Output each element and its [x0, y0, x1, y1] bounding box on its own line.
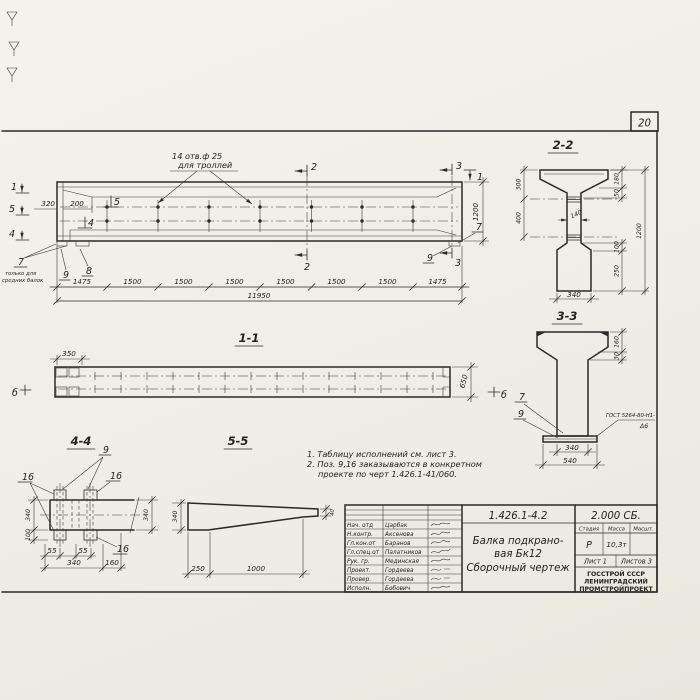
anchor-crosses — [58, 372, 447, 393]
section-3-3-label: 3-3 — [557, 309, 578, 323]
page-number-box: 20 — [631, 112, 658, 131]
weld-mark: Δ6 — [639, 423, 648, 430]
dim-160: 160 — [105, 558, 119, 567]
section-cut-marks: 2 2 3 3 — [295, 161, 462, 273]
plan-view-1-1: 1-1 350 650 б б — [12, 331, 507, 402]
revision-marks — [7, 12, 19, 82]
dim-340-bottom: 340 — [67, 558, 81, 567]
note-line-1: 1. Таблицу исполнений см. лист 3. — [307, 449, 457, 459]
dim-340-left: 340 — [25, 509, 32, 521]
dim-320: 320 — [41, 199, 55, 208]
doc-number: 1.426.1-4.2 — [489, 511, 548, 522]
view-mark-1: 1 — [11, 182, 17, 193]
interior-cut-marks: 5 4 — [78, 196, 120, 229]
plan-1-1-label: 1-1 — [239, 331, 260, 345]
view-5-5-label: 5-5 — [228, 434, 249, 448]
name: Мединская — [385, 559, 419, 565]
dim-180: 180 — [614, 173, 621, 185]
dim-250: 250 — [191, 564, 205, 573]
dim-30: 30 — [614, 352, 621, 360]
mass-value: 10,3т — [606, 540, 627, 549]
section-4-4-label: 4-4 — [70, 434, 92, 448]
doc-code: 2.000 СБ. — [591, 511, 641, 522]
callouts-33: 7 9 — [514, 392, 563, 438]
cut-mark-5: 5 — [114, 197, 120, 208]
dim-400: 400 — [516, 212, 523, 224]
callout-8: 8 — [86, 266, 92, 277]
section-2-2-label: 2-2 — [553, 138, 574, 152]
seg-dim: 1500 — [123, 277, 142, 286]
seg-dim: 1475 — [428, 277, 447, 286]
right-dim-55: 40 — [320, 505, 336, 520]
callout-16-tr: 16 — [110, 471, 122, 482]
callout-16-tl: 16 — [22, 472, 34, 483]
dim-200: 200 — [70, 199, 84, 208]
callout-16-br: 16 — [117, 544, 129, 555]
height-dim: 1200 — [464, 177, 489, 246]
total-dim: 11950 — [248, 291, 271, 300]
bottom-plate — [543, 436, 597, 442]
view-mark-1-right: 1 — [477, 172, 483, 183]
dim-100: 100 — [25, 529, 32, 541]
org-line-1: ГОССТРОЙ СССР — [587, 569, 645, 578]
callout-7-note1: только для — [5, 271, 37, 277]
callout-7: 7 — [519, 392, 525, 403]
header-scale: Масшт. — [633, 527, 653, 533]
mark-b-left: б — [12, 388, 18, 399]
weld-note: ГОСТ 5264-80-Н1- Δ6 — [597, 413, 655, 436]
role: Гл.кон.от — [347, 541, 376, 547]
name: Палатников — [385, 550, 422, 556]
stamp-right-grid: Стадия Масса Масшт. Р 10,3т Лист 1 Листо… — [575, 523, 657, 593]
stage-value: Р — [586, 540, 592, 551]
view-mark-5: 5 — [9, 204, 15, 215]
seg-dim: 1500 — [276, 277, 295, 286]
callout-7: 7 — [18, 257, 24, 268]
dim-40: 40 — [330, 509, 336, 516]
drawing-notes: 1. Таблицу исполнений см. лист 3. 2. Поз… — [307, 449, 482, 479]
title-line-2: вая Бк12 — [494, 549, 542, 560]
dim-650: 650 — [457, 373, 469, 389]
beam-outline — [57, 182, 462, 246]
seg-dim: 1500 — [378, 277, 397, 286]
end-details — [56, 367, 450, 397]
role: Исполн. — [347, 586, 371, 592]
role: Проект. — [347, 568, 371, 574]
dim-55a: 55 — [47, 546, 57, 555]
note-line-2: 2. Поз. 9,16 заказываются в конкретном — [307, 459, 482, 469]
title-line-3: Сборочный чертеж — [466, 562, 570, 574]
bottom-dim: 340 — [549, 290, 599, 303]
right-dims: 180 50 1200 100 250 — [583, 166, 649, 295]
section-mark-2-bottom: 2 — [304, 262, 310, 273]
dim-340-right: 340 — [143, 509, 150, 521]
dim-350-group: 350 — [50, 349, 90, 365]
org-line-3: ПРОМСТРОЙПРОЕКТ — [579, 584, 653, 593]
bottom-dims-33: 340 540 — [535, 443, 605, 469]
section-mark-3-bottom: 3 — [455, 258, 461, 269]
scanned-drawing-sheet: 20 — [0, 0, 700, 700]
holes-note-line2: для троллей — [177, 160, 233, 170]
bottom-dims-44: 55 55 340 160 — [40, 533, 126, 571]
bottom-dims-55: 250 1000 — [182, 519, 310, 578]
dim-340: 340 — [172, 511, 179, 523]
callout-7-note2: средних балок — [2, 278, 44, 284]
role: Рук. гр. — [347, 559, 370, 565]
drawing-canvas: 20 — [0, 0, 700, 700]
dim-300: 300 — [516, 179, 523, 191]
left-dims-44: 340 100 — [25, 496, 48, 544]
personnel-grid: Нач. отд Царбак Н.контр. Аксенова Гл.кон… — [345, 505, 462, 592]
callout-9-right: 9 — [427, 253, 433, 264]
left-dim-55: 340 — [172, 499, 186, 534]
note-line-3: проекте по черт 1.426.1-41/060. — [318, 469, 457, 479]
dimension-chain: 1475 1500 1500 1500 1500 1500 1500 1475 … — [50, 246, 469, 304]
role: Н.контр. — [347, 532, 373, 538]
title-block: Нач. отд Царбак Н.контр. Аксенова Гл.кон… — [345, 505, 657, 593]
seg-dim: 1475 — [73, 277, 92, 286]
dim-1000: 1000 — [247, 564, 266, 573]
dim-50: 50 — [614, 189, 621, 197]
callouts-right: 7 9 — [423, 222, 483, 264]
drawing-title: Балка подкрано- вая Бк12 Сборочный черте… — [466, 536, 570, 574]
role: Провер. — [347, 577, 371, 583]
cut-mark-4: 4 — [88, 218, 94, 229]
dim-1200: 1200 — [471, 202, 480, 221]
section-2-2: 2-2 140 300 400 180 50 1200 — [516, 138, 650, 303]
org-line-2: ЛЕНИНГРАДСКИЙ — [584, 577, 648, 586]
section-3-3: 3-3 160 30 7 9 ГОСТ 5264-80-Н1- Δ6 — [514, 309, 655, 469]
dim-1200: 1200 — [636, 223, 643, 239]
dim-250: 250 — [614, 265, 621, 277]
dim-140-group: 140 — [558, 209, 590, 222]
name: Царбак — [385, 523, 408, 529]
callout-9: 9 — [103, 445, 109, 456]
header-stage: Стадия — [579, 527, 600, 533]
weld-gost-text: ГОСТ 5264-80-Н1- — [606, 413, 655, 419]
role: Гл.спец.от — [347, 550, 380, 556]
elevation-view: 14 отв.ф 25 для троллей 2 2 3 3 — [2, 151, 489, 304]
dim-650-group: 650 — [452, 362, 478, 402]
name: Баранов — [385, 541, 411, 547]
name: Гордеева — [385, 577, 414, 583]
section-mark-2-top: 2 — [311, 162, 317, 173]
name: Аксенова — [384, 532, 414, 538]
name: Бобович — [385, 586, 411, 592]
sheet-number: Лист 1 — [583, 558, 607, 566]
mark-b-right: б — [501, 390, 507, 401]
callout-9: 9 — [63, 270, 69, 281]
seg-dim: 1500 — [327, 277, 346, 286]
header-mass: Масса — [608, 527, 625, 533]
dim-55b: 55 — [78, 546, 88, 555]
seg-dim: 1500 — [225, 277, 244, 286]
connection-plates — [40, 483, 148, 550]
title-line-1: Балка подкрано- — [473, 536, 564, 547]
dim-350: 350 — [62, 349, 76, 358]
dim-340: 340 — [567, 290, 581, 299]
section-4-4: 4-4 340 100 340 55 55 — [18, 434, 158, 571]
name: Гордеева — [385, 568, 414, 574]
callout-9: 9 — [518, 409, 524, 420]
page-number: 20 — [638, 119, 651, 130]
role: Нач. отд — [347, 523, 373, 529]
dim-160: 160 — [614, 336, 621, 348]
section-mark-3-top: 3 — [456, 161, 462, 172]
dim-540: 540 — [563, 456, 577, 465]
callout-7-right: 7 — [476, 222, 482, 233]
view-mark-4: 4 — [9, 229, 15, 240]
dim-340: 340 — [565, 443, 579, 452]
dim-100: 100 — [614, 241, 621, 253]
left-dims: 300 400 — [516, 166, 539, 241]
sheet-count: Листов 3 — [620, 558, 652, 566]
seg-dim: 1500 — [174, 277, 193, 286]
